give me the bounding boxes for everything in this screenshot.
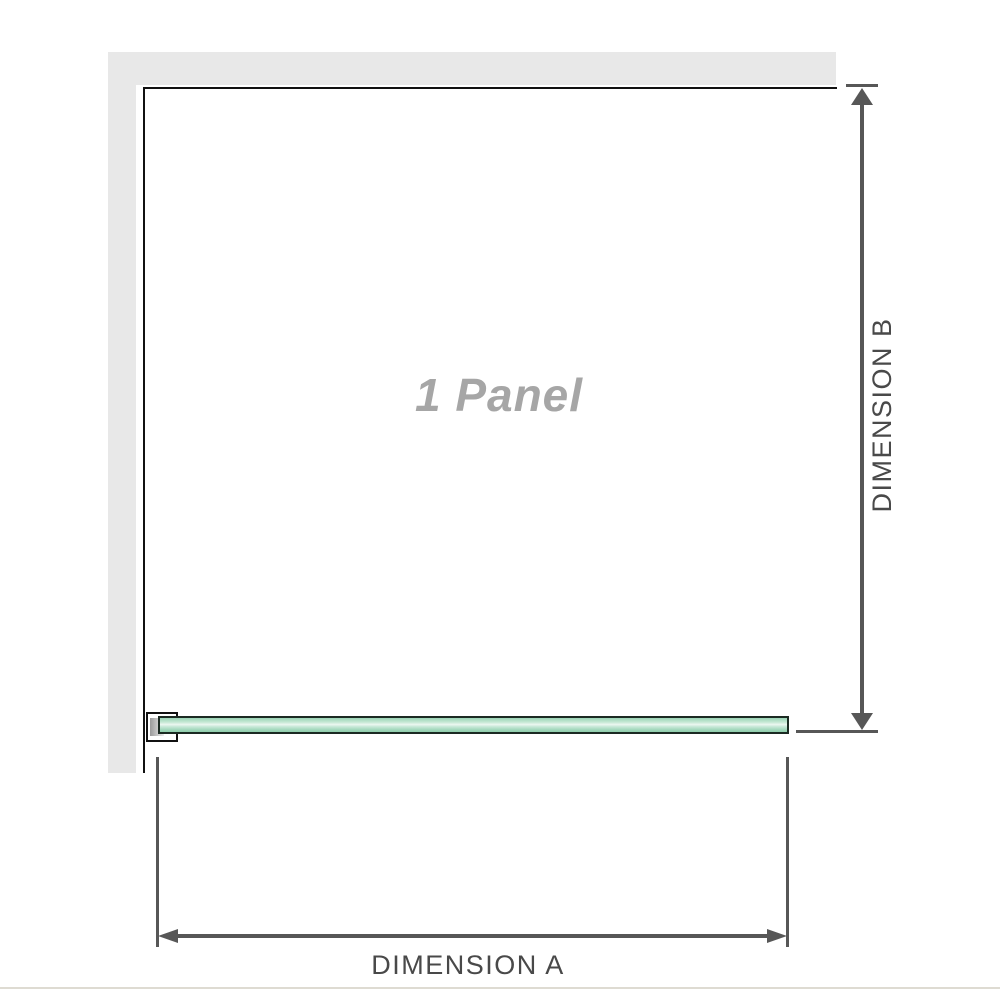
panel-outline-left	[143, 87, 145, 773]
wall-left	[108, 52, 136, 773]
dimension-a-label: DIMENSION A	[318, 949, 618, 981]
panel-outline-top	[143, 87, 837, 89]
panel-label: 1 Panel	[339, 367, 659, 423]
arrow-left-icon	[158, 929, 178, 943]
dimension-b-line	[860, 102, 864, 715]
bottom-separator-line	[0, 987, 1000, 989]
dimension-a-extension-right	[786, 757, 789, 947]
dimension-b-label: DIMENSION B	[866, 265, 898, 565]
dimension-a-line	[178, 934, 767, 938]
arrow-right-icon	[767, 929, 787, 943]
dimension-b-tick-bottom	[796, 730, 878, 733]
dimension-a-extension-left	[156, 757, 159, 947]
glass-panel	[158, 716, 789, 734]
diagram-canvas: 1 Panel DIMENSION B DIMENSION A	[0, 0, 1000, 1000]
dimension-b-tick-top	[846, 84, 878, 87]
arrow-down-icon	[851, 713, 873, 730]
wall-top	[108, 52, 836, 85]
